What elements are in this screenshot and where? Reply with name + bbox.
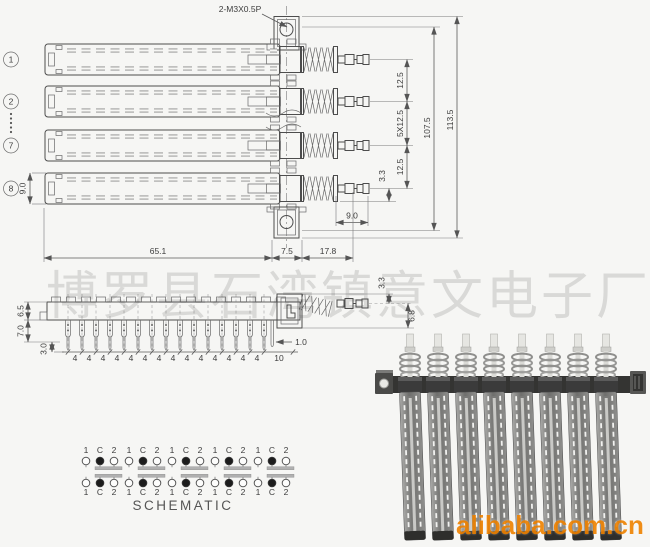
dim-7-0: 7.0 (16, 325, 26, 337)
dim-5x12-5: 5X12.5 (395, 110, 405, 137)
row-marker-7: 7 (9, 141, 14, 151)
dimensions-right: 12.5 5X12.5 12.5 3.3 107.5 113.5 9.0 (302, 17, 463, 239)
row-markers: 1 2 7 8 (4, 52, 19, 196)
dim-6-5: 6.5 (16, 305, 26, 317)
dimensions-bottom: 65.1 7.5 17.8 (44, 192, 353, 262)
row-marker-8: 8 (9, 184, 14, 194)
row-marker-2: 2 (9, 97, 14, 107)
scanned-drawing-page: 4 1 C 2 1 C 2 (0, 0, 650, 547)
thin-end-pin (271, 320, 273, 347)
side-view: 6.5 7.0 3.0 10 1.0 3.3 (16, 277, 417, 363)
dim-3-3: 3.3 (377, 170, 387, 182)
dim-6-8: 6.8 (407, 310, 417, 322)
dim-17-8: 17.8 (320, 246, 337, 256)
photo-right-bracket (630, 371, 646, 394)
dim-113-5: 113.5 (445, 109, 455, 130)
dim-12-5-top: 12.5 (395, 72, 405, 89)
dimension-row-height: 9.0 (18, 173, 47, 204)
dim-10: 10 (274, 353, 284, 363)
schematic-title: SCHEMATIC (132, 498, 233, 513)
dim-107-5: 107.5 (422, 117, 432, 139)
thread-spec-label: 2-M3X0.5P (219, 4, 262, 14)
dim-65-1: 65.1 (150, 246, 167, 256)
ellipsis-dots (10, 113, 12, 133)
row-marker-1: 1 (9, 55, 14, 65)
photo-left-bracket (375, 370, 393, 394)
side-shaft (337, 299, 368, 309)
dim-3-0: 3.0 (39, 343, 49, 355)
dim-3-3-side: 3.3 (377, 277, 387, 289)
side-bracket (277, 294, 302, 328)
dim-7-5: 7.5 (281, 246, 293, 256)
side-spring (299, 294, 332, 317)
alibaba-watermark: alibaba.com.cn (456, 510, 644, 541)
dim-1-0: 1.0 (295, 337, 307, 347)
schematic: SCHEMATIC (82, 445, 294, 513)
dim-9-0-row: 9.0 (18, 182, 28, 194)
technical-drawing: 4 1 C 2 1 C 2 (0, 0, 650, 547)
dim-9-0-shaft: 9.0 (346, 211, 358, 221)
dim-12-5-bottom: 12.5 (395, 158, 405, 175)
side-body (47, 302, 300, 320)
front-view: 2-M3X0.5P 1 2 7 (4, 4, 464, 262)
